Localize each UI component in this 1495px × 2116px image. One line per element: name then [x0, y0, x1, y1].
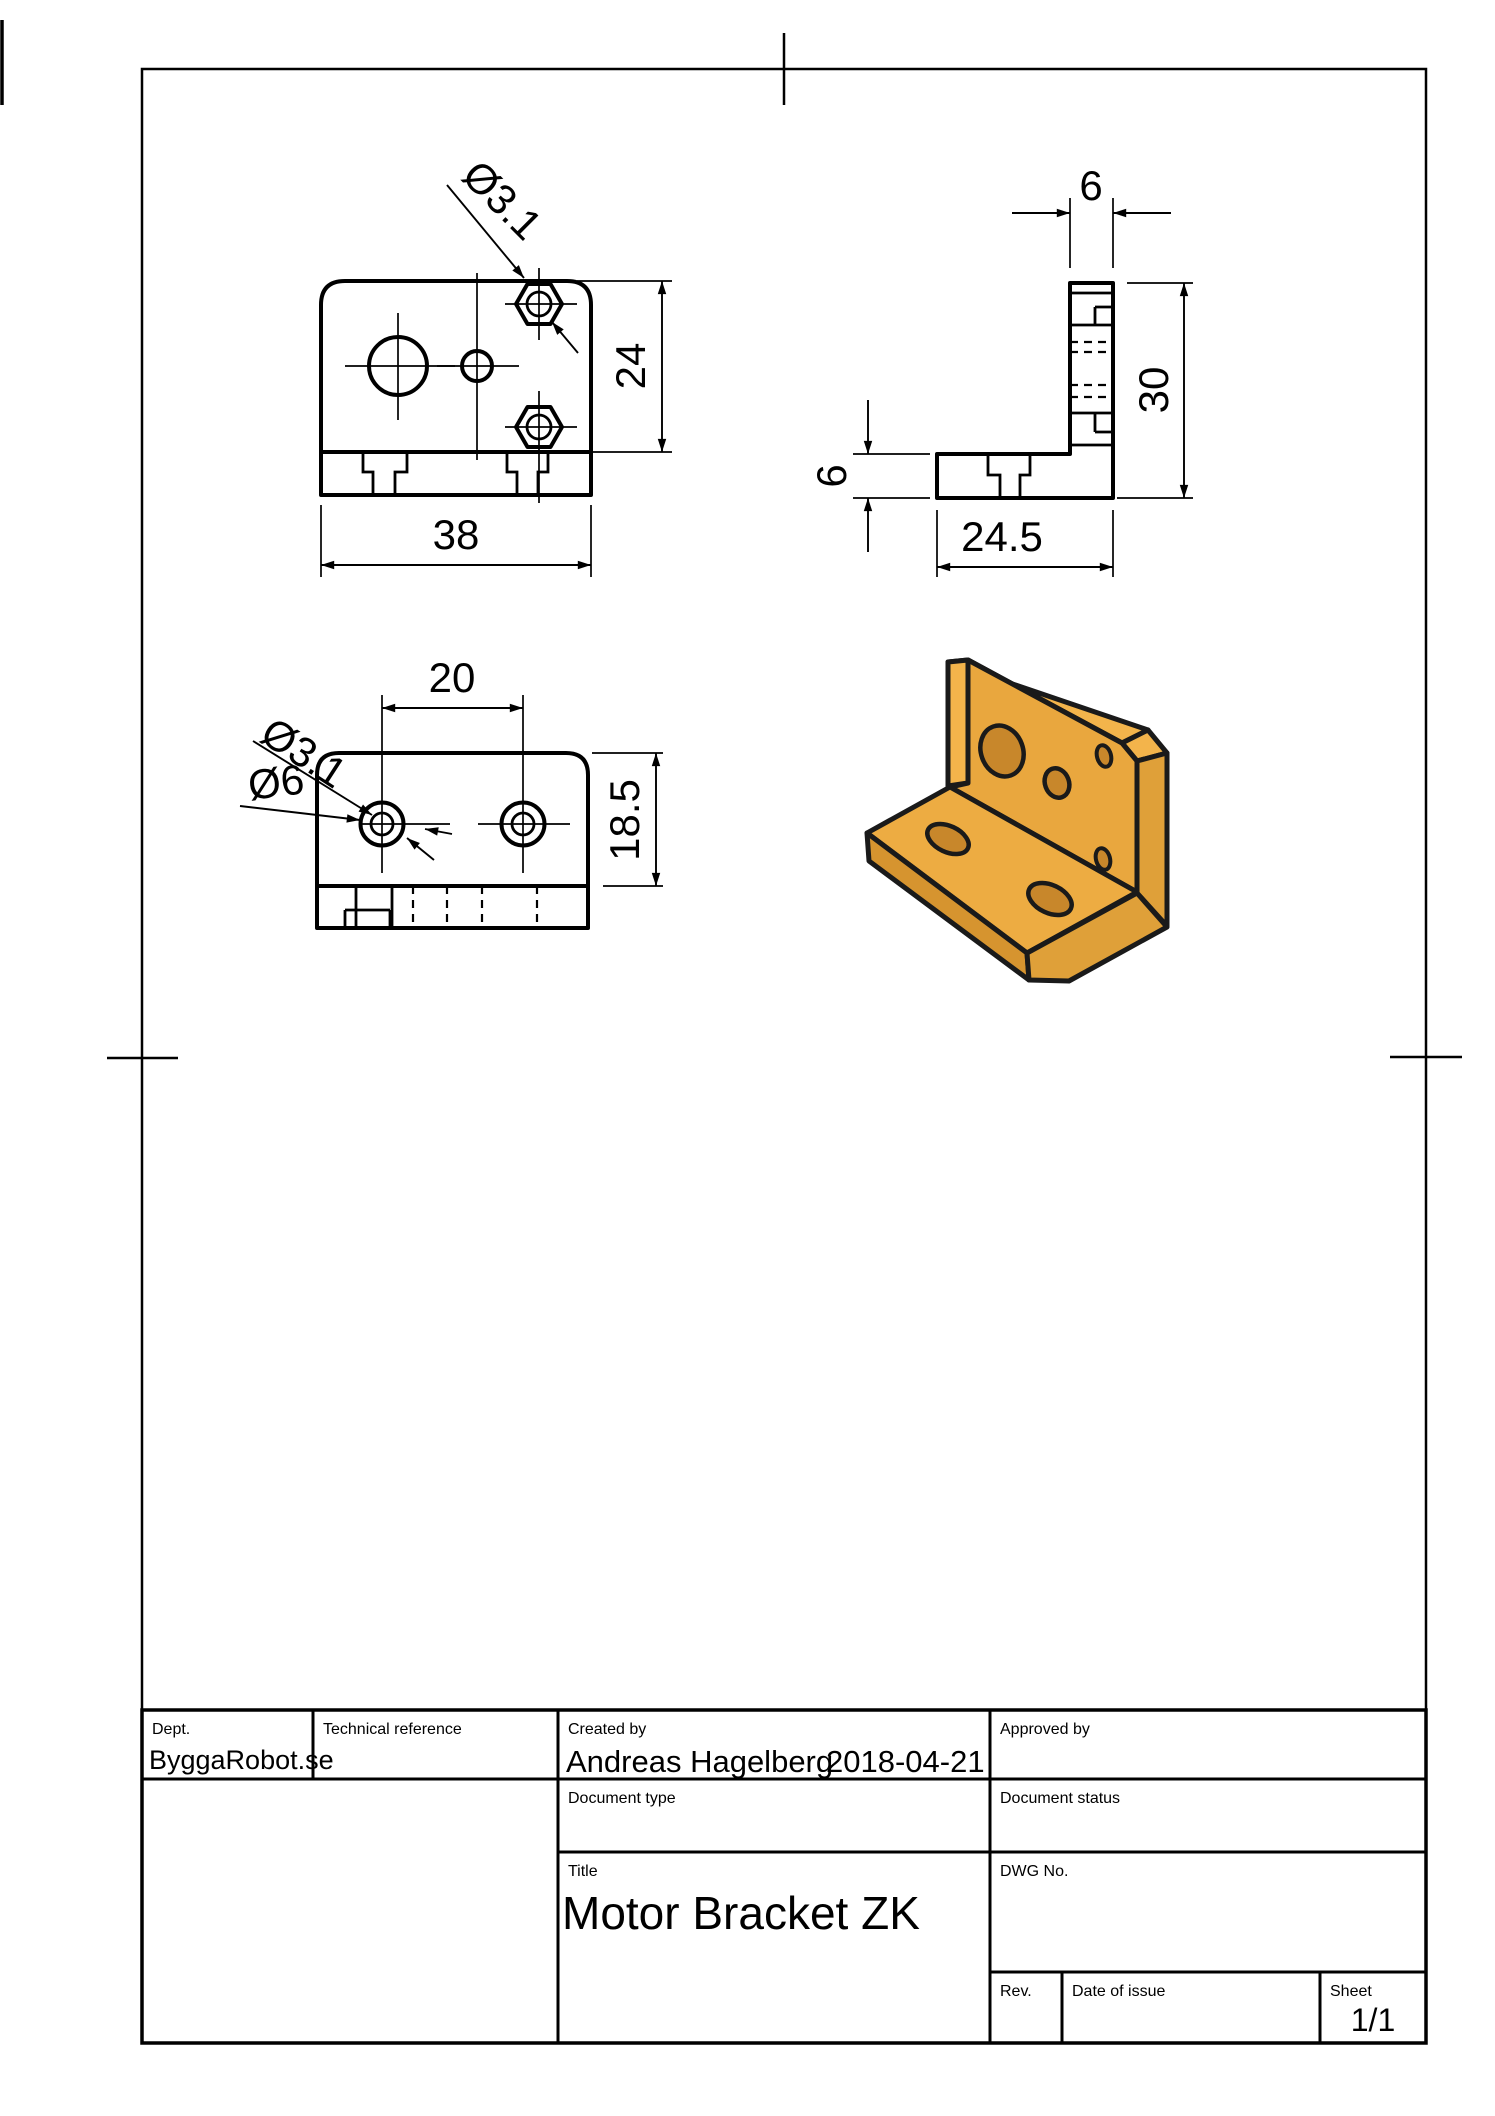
dimension-depth-18-5: 18.5 [592, 753, 663, 886]
dimension-label: 24.5 [961, 513, 1043, 560]
front-outline [321, 281, 591, 495]
iso-left-face [948, 660, 968, 786]
dimension-label: 20 [429, 654, 476, 701]
drawing-frame [2, 20, 1462, 2043]
tab-slot-line [507, 452, 517, 495]
front-view: 24 38 Ø3.1 [321, 151, 672, 577]
isometric-view [867, 660, 1167, 981]
created-by-label: Created by [568, 1721, 646, 1738]
top-outline [317, 753, 588, 928]
document-type-label: Document type [568, 1790, 676, 1807]
rev-label: Rev. [1000, 1983, 1032, 2000]
top-view: 20 18.5 Ø3.1 Ø6 [240, 654, 663, 928]
dimension-label: 6 [1079, 162, 1102, 209]
dimension-width-38: 38 [321, 505, 591, 577]
sheet-label: Sheet [1330, 1983, 1372, 2000]
title-label: Title [568, 1863, 598, 1880]
dimension-height-30: 30 [1117, 283, 1193, 498]
dimension-label: 18.5 [601, 779, 648, 861]
finger-joint-lines [988, 293, 1113, 498]
dept-value: ByggaRobot.se [149, 1745, 334, 1775]
title-value: Motor Bracket ZK [562, 1887, 920, 1939]
leader-hole-diameter: Ø3.1 [447, 151, 578, 353]
tab-slot-line [363, 452, 373, 495]
sheet-value: 1/1 [1351, 2002, 1395, 2038]
created-by-name: Andreas Hagelberg [566, 1744, 833, 1779]
dept-label: Dept. [152, 1721, 190, 1738]
technical-reference-label: Technical reference [323, 1721, 462, 1738]
dimension-thickness-6: 6 [1012, 162, 1171, 268]
dimension-label: 30 [1130, 367, 1177, 414]
created-by-date: 2018-04-21 [826, 1744, 985, 1779]
dwg-no-label: DWG No. [1000, 1863, 1068, 1880]
drawing-sheet: 24 38 Ø3.1 [0, 0, 1495, 2116]
finger-joint-lines [345, 886, 537, 928]
dimension-base-thickness-6: 6 [808, 400, 930, 552]
side-view: 6 30 6 24.5 [808, 162, 1193, 577]
document-status-label: Document status [1000, 1790, 1120, 1807]
dimension-depth-24-5: 24.5 [937, 510, 1113, 577]
dimension-label: Ø3.1 [454, 151, 552, 249]
approved-by-label: Approved by [1000, 1721, 1090, 1738]
title-block: Dept. ByggaRobot.se Technical reference … [142, 1710, 1426, 2043]
dimension-label: Ø6 [245, 755, 306, 808]
tab-slot-line [395, 452, 407, 495]
dimension-label: 24 [607, 343, 654, 390]
drawing-canvas: 24 38 Ø3.1 [0, 0, 1495, 2116]
dimension-label: 6 [808, 464, 855, 487]
side-outline [937, 283, 1113, 498]
dimension-label: 38 [433, 511, 480, 558]
date-of-issue-label: Date of issue [1072, 1983, 1165, 2000]
dimension-hole-spacing-20: 20 [382, 654, 523, 708]
